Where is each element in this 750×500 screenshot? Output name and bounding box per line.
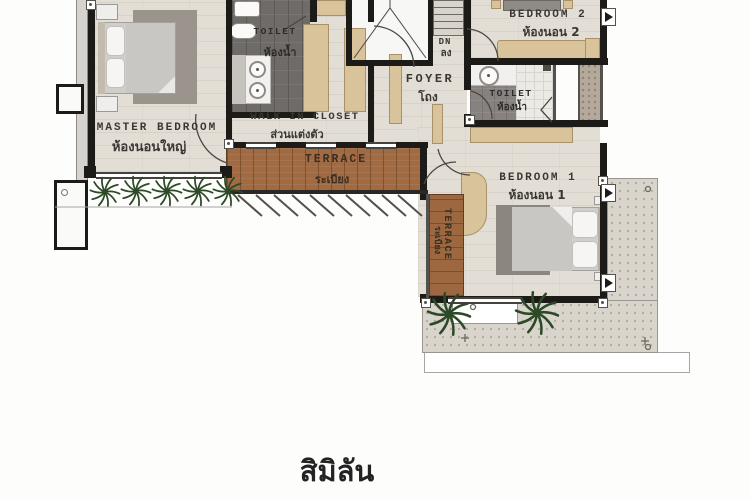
floor-plan-page: MASTER BEDROOM ห้องนอนใหญ่ TOILET ห้องน้… (0, 0, 750, 500)
room-label-terrace1-th: ระเบียง (315, 170, 349, 188)
room-label-toilet1-en: TOILET (253, 26, 296, 37)
stairs-label-dn-th: ลง (440, 46, 451, 61)
room-label-toilet1-th: ห้องน้ำ (264, 43, 297, 61)
room-label-bedroom1-th: ห้องนอน 1 (508, 186, 565, 205)
room-label-master-en: MASTER BEDROOM (97, 122, 217, 134)
skylight-lines-icon (354, 0, 426, 58)
room-label-terrace1-en: TERRACE (305, 153, 367, 166)
survey-cross-icon (461, 187, 651, 350)
room-label-foyer-th: โถง (418, 88, 438, 107)
room-label-toilet2-en: TOILET (489, 88, 532, 99)
room-label-bedroom2-en: BEDROOM 2 (509, 9, 586, 21)
plan-linework (0, 0, 750, 500)
room-label-bedroom1-en: BEDROOM 1 (499, 172, 576, 184)
room-label-bedroom2-th: ห้องนอน 2 (522, 23, 579, 42)
louver-shading-icon (238, 195, 422, 216)
room-label-terrace2-th: ระเบียง (430, 226, 444, 254)
room-label-closet-th: ส่วนแต่งตัว (270, 125, 323, 143)
plan-title: สิมิลัน (247, 448, 427, 494)
room-label-foyer-en: FOYER (406, 72, 455, 86)
room-label-master-th: ห้องนอนใหญ่ (112, 136, 186, 157)
room-label-toilet2-th: ห้องน้ำ (497, 100, 527, 115)
room-label-closet-en: WALK IN CLOSET (250, 111, 359, 123)
